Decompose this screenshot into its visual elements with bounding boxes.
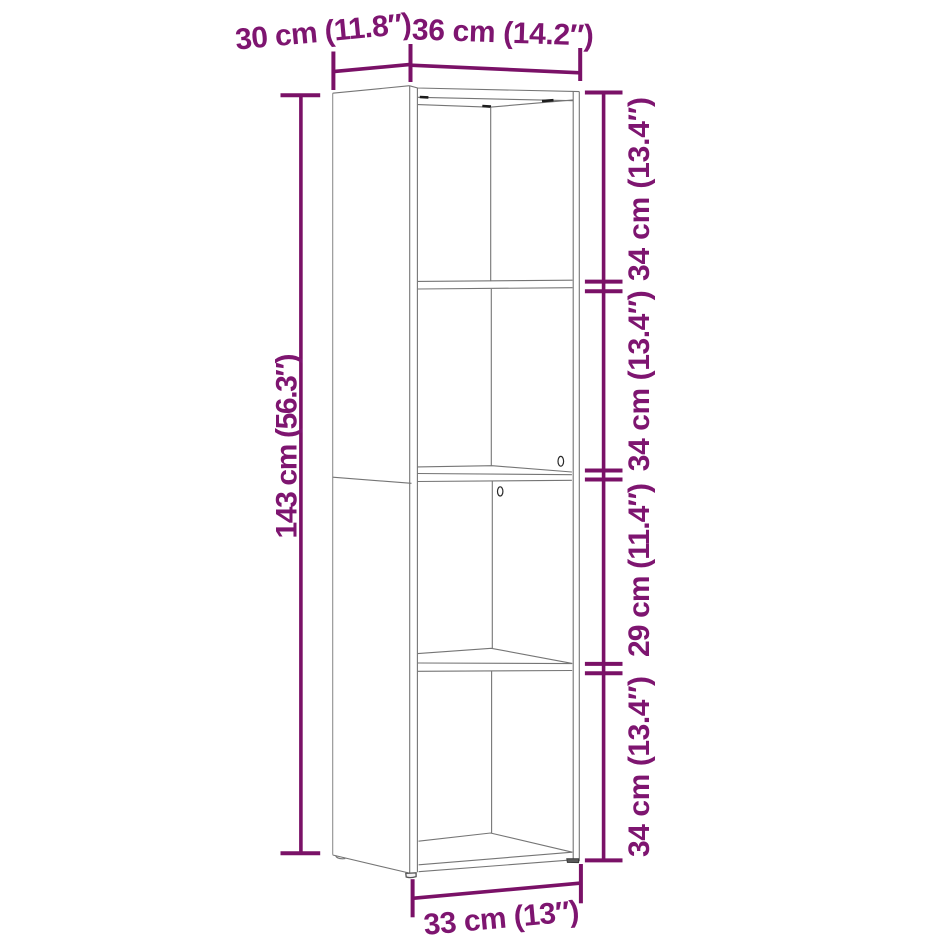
svg-text:143 cm (56.3″): 143 cm (56.3″) [270, 354, 303, 539]
svg-text:29 cm (11.4″): 29 cm (11.4″) [623, 483, 656, 657]
svg-text:34 cm (13.4″): 34 cm (13.4″) [623, 97, 656, 281]
svg-text:34 cm (13.4″): 34 cm (13.4″) [623, 676, 656, 857]
svg-text:34 cm (13.4″): 34 cm (13.4″) [623, 290, 656, 471]
svg-text:36 cm (14.2″): 36 cm (14.2″) [411, 13, 594, 52]
